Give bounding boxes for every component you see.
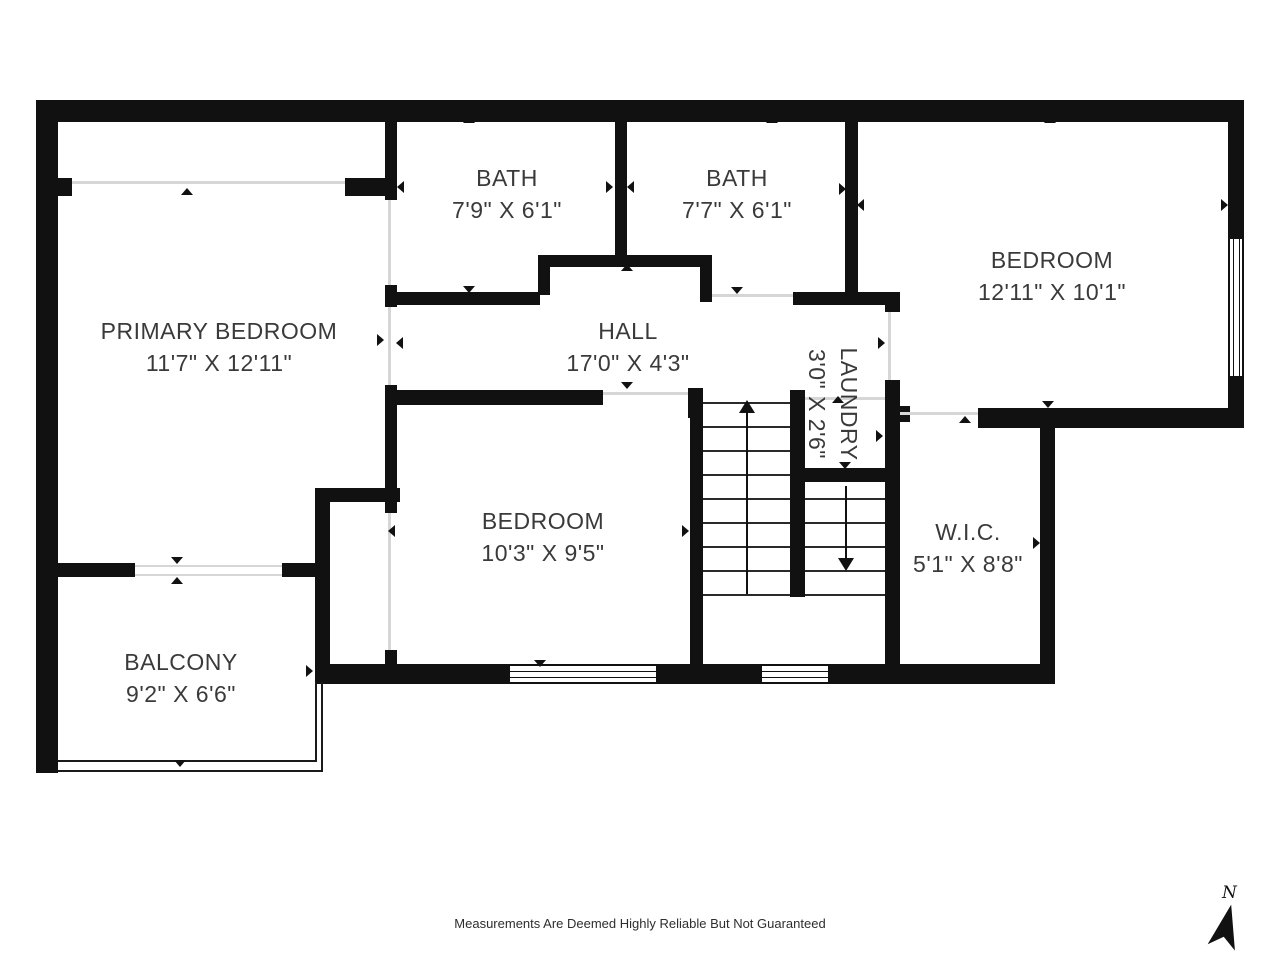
room-label-bath-2: BATH7'7" X 6'1" <box>682 162 792 226</box>
extent-arrow <box>959 664 971 671</box>
door-opening <box>135 574 282 576</box>
wall <box>315 664 1055 684</box>
room-dimensions: 10'3" X 9'5" <box>481 537 604 569</box>
room-name: PRIMARY BEDROOM <box>101 315 338 347</box>
room-label-bedroom-middle: BEDROOM10'3" X 9'5" <box>481 505 604 569</box>
north-needle <box>1208 901 1245 950</box>
extent-arrow <box>534 394 546 401</box>
room-label-laundry: LAUNDRY3'0" X 2'6" <box>801 348 865 461</box>
north-label: N <box>1221 883 1238 903</box>
window <box>760 664 830 684</box>
wall <box>385 100 397 200</box>
wall <box>282 563 317 577</box>
extent-arrow <box>876 430 883 442</box>
floor-plan: PRIMARY BEDROOM11'7" X 12'11"BATH7'9" X … <box>0 0 1280 960</box>
extent-arrow <box>839 183 846 195</box>
room-dimensions: 5'1" X 8'8" <box>913 548 1023 580</box>
extent-arrow <box>463 286 475 293</box>
balcony-railing <box>58 770 323 772</box>
door-opening <box>388 307 391 385</box>
extent-arrow <box>171 577 183 584</box>
window-pane-line <box>1233 239 1234 376</box>
room-label-wic: W.I.C.5'1" X 8'8" <box>913 516 1023 580</box>
wall <box>36 178 72 196</box>
door-opening <box>72 181 345 184</box>
room-name: BATH <box>452 162 562 194</box>
room-dimensions: 12'11" X 10'1" <box>978 276 1126 308</box>
wall <box>315 488 400 502</box>
wall <box>845 100 858 292</box>
wall <box>978 408 1244 428</box>
room-label-bath-1: BATH7'9" X 6'1" <box>452 162 562 226</box>
room-name: BATH <box>682 162 792 194</box>
room-name: LAUNDRY <box>833 348 865 461</box>
room-name: W.I.C. <box>913 516 1023 548</box>
room-name: BEDROOM <box>978 244 1126 276</box>
extent-arrow <box>397 181 404 193</box>
door-opening <box>388 200 391 285</box>
room-name: BALCONY <box>124 646 237 678</box>
balcony-railing <box>58 760 317 762</box>
disclaimer-text: Measurements Are Deemed Highly Reliable … <box>0 916 1280 931</box>
window <box>1228 237 1244 378</box>
extent-arrow <box>1221 199 1228 211</box>
room-dimensions: 7'9" X 6'1" <box>452 194 562 226</box>
wall <box>397 390 603 405</box>
wall <box>315 488 330 682</box>
room-dimensions: 17'0" X 4'3" <box>566 347 689 379</box>
room-name: BEDROOM <box>481 505 604 537</box>
window-pane-line <box>510 677 656 678</box>
window-pane-line <box>762 677 828 678</box>
extent-arrow <box>627 181 634 193</box>
wall <box>36 100 1244 122</box>
stair-direction-arrow <box>838 558 854 571</box>
room-dimensions: 7'7" X 6'1" <box>682 194 792 226</box>
extent-arrow <box>463 116 475 123</box>
room-dimensions: 11'7" X 12'11" <box>101 347 338 379</box>
door-opening <box>712 294 793 297</box>
extent-arrow <box>890 537 897 549</box>
extent-arrow <box>621 382 633 389</box>
room-dimensions: 9'2" X 6'6" <box>124 678 237 710</box>
extent-arrow <box>682 525 689 537</box>
extent-arrow <box>388 525 395 537</box>
extent-arrow <box>606 181 613 193</box>
door-opening <box>900 412 978 415</box>
extent-arrow <box>171 557 183 564</box>
wall <box>793 292 900 305</box>
room-label-bedroom-right: BEDROOM12'11" X 10'1" <box>978 244 1126 308</box>
stair-tread <box>703 594 790 596</box>
extent-arrow <box>377 334 384 346</box>
extent-arrow <box>1044 116 1056 123</box>
door-opening <box>603 392 688 395</box>
wall <box>700 255 712 302</box>
room-label-hall: HALL17'0" X 4'3" <box>566 315 689 379</box>
room-label-primary-bedroom: PRIMARY BEDROOM11'7" X 12'11" <box>101 315 338 379</box>
door-opening <box>888 312 891 380</box>
extent-arrow <box>48 665 55 677</box>
wall <box>36 563 135 577</box>
wall <box>805 468 900 482</box>
stair-direction-line <box>746 408 748 594</box>
extent-arrow <box>621 264 633 271</box>
window-pane-line <box>510 671 656 672</box>
extent-arrow <box>857 199 864 211</box>
balcony-railing <box>315 682 317 762</box>
extent-arrow <box>306 665 313 677</box>
door-opening <box>135 565 282 567</box>
wall <box>395 292 540 305</box>
extent-arrow <box>48 337 55 349</box>
room-name: HALL <box>566 315 689 347</box>
balcony-railing <box>321 682 323 772</box>
extent-arrow <box>1042 401 1054 408</box>
stair-tread <box>805 594 885 596</box>
wall <box>615 100 627 258</box>
window-pane-line <box>762 671 828 672</box>
window-pane-line <box>1239 239 1240 376</box>
wall <box>385 650 397 672</box>
extent-arrow <box>1033 537 1040 549</box>
wall <box>538 255 550 295</box>
stair-direction-line <box>845 486 847 562</box>
extent-arrow <box>534 660 546 667</box>
wall <box>690 390 703 684</box>
north-arrow: N <box>1196 872 1260 956</box>
extent-arrow <box>174 760 186 767</box>
room-label-balcony: BALCONY9'2" X 6'6" <box>124 646 237 710</box>
stair-direction-arrow <box>739 400 755 413</box>
window <box>508 664 658 684</box>
wall <box>885 292 900 312</box>
extent-arrow <box>396 337 403 349</box>
extent-arrow <box>959 416 971 423</box>
extent-arrow <box>878 337 885 349</box>
extent-arrow <box>731 287 743 294</box>
extent-arrow <box>181 188 193 195</box>
wall <box>885 380 900 684</box>
room-dimensions: 3'0" X 2'6" <box>801 348 833 461</box>
extent-arrow <box>766 116 778 123</box>
extent-arrow <box>839 462 851 469</box>
wall <box>1040 423 1055 684</box>
